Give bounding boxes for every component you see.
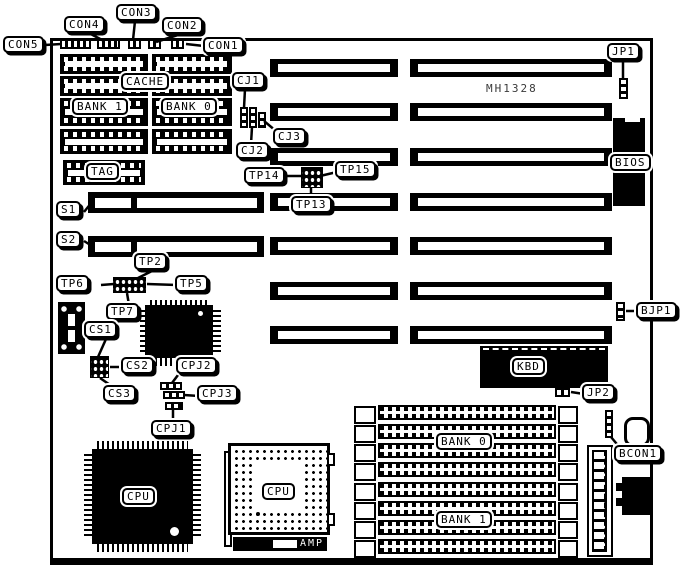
con4-header	[97, 39, 120, 49]
label-kbd: KBD	[512, 358, 545, 375]
expansion-slot-segment	[270, 103, 398, 121]
expansion-slot-segment	[270, 193, 398, 211]
callout-con5: CON5	[3, 36, 44, 53]
expansion-slot-segment	[410, 193, 612, 211]
cpu-qfp-pin1-dot	[170, 527, 179, 536]
expansion-slot-segment	[410, 237, 612, 255]
expansion-slot-segment	[270, 326, 398, 344]
callout-jp2: JP2	[582, 384, 615, 401]
label-tag: TAG	[86, 163, 119, 180]
expansion-slot-segment	[410, 103, 612, 121]
chipset-pin1-dot	[198, 311, 203, 316]
callout-tp6: TP6	[56, 275, 89, 292]
con2-header	[148, 39, 161, 49]
chipset-pins	[213, 310, 221, 353]
label-cache: CACHE	[121, 73, 169, 90]
callout-bcon1: BCON1	[614, 445, 662, 462]
cs-jumper-block	[90, 356, 109, 378]
cj3-jumper	[258, 112, 266, 128]
callout-tp5: TP5	[175, 275, 208, 292]
expansion-slot-segment	[270, 282, 398, 300]
label-cache-bank0: BANK 0	[161, 98, 217, 115]
callout-tp7: TP7	[106, 303, 139, 320]
s1-slot	[88, 192, 264, 213]
pga-pin1-dot	[256, 512, 260, 516]
callout-bjp1: BJP1	[636, 302, 677, 319]
expansion-slot-segment	[410, 326, 612, 344]
callout-con3: CON3	[116, 4, 157, 21]
jp1-jumper	[619, 78, 628, 99]
cache-chip	[152, 129, 232, 154]
expansion-slot-segment	[410, 148, 612, 166]
callout-s1: S1	[56, 201, 81, 218]
bcon1-jumper	[605, 410, 613, 438]
cpu-qfp-pins	[84, 454, 92, 539]
simm-socket	[378, 462, 556, 477]
cj1-jumper	[240, 107, 248, 128]
amp-socket-bar: AMP	[233, 537, 327, 551]
jp2-jumper	[555, 388, 570, 397]
expansion-slot-segment	[410, 59, 612, 77]
callout-con2: CON2	[162, 17, 203, 34]
label-cpu-qfp: CPU	[122, 488, 155, 505]
s2-slot	[88, 236, 264, 257]
cj2-jumper	[249, 107, 257, 128]
label-bios: BIOS	[610, 154, 651, 171]
callout-cs1: CS1	[84, 321, 117, 338]
label-cache-bank1: BANK 1	[72, 98, 128, 115]
expansion-slot-segment	[410, 282, 612, 300]
tp2-5-6-7-jumper-block	[113, 277, 146, 293]
cache-chip	[60, 54, 148, 74]
motherboard-diagram: MH1328 AMP	[0, 0, 684, 572]
callout-cpj1: CPJ1	[151, 420, 192, 437]
callout-tp14: TP14	[244, 167, 285, 184]
cpu-qfp-pins	[97, 441, 188, 449]
expansion-slot-segment	[270, 237, 398, 255]
callout-cj3: CJ3	[273, 128, 306, 145]
socket-tab	[327, 513, 335, 526]
expansion-slot-segment	[270, 59, 398, 77]
callout-s2: S2	[56, 231, 81, 248]
cache-chip	[60, 129, 148, 154]
power-connector	[58, 302, 85, 354]
callout-cs3: CS3	[103, 385, 136, 402]
cpj2-jumper	[160, 382, 182, 390]
tp13-14-15-jumper-block	[301, 167, 323, 188]
callout-con1: CON1	[203, 37, 244, 54]
cpu-qfp-pins	[97, 544, 188, 552]
amp-brand-text: AMP	[300, 538, 324, 549]
simm-socket	[378, 405, 556, 420]
con1-header	[171, 39, 184, 49]
callout-tp13: TP13	[291, 196, 332, 213]
callout-cs2: CS2	[121, 357, 154, 374]
callout-tp15: TP15	[335, 161, 376, 178]
simm-socket	[378, 539, 556, 554]
keyboard-din-connector	[624, 417, 650, 447]
label-simm-bank0: BANK 0	[436, 433, 492, 450]
bcon1-connector	[587, 445, 613, 557]
bjp1-jumper	[616, 302, 625, 321]
cache-chip	[152, 54, 232, 74]
callout-cpj2: CPJ2	[176, 357, 217, 374]
cpj3-jumper	[163, 391, 185, 399]
label-cpu-pga: CPU	[262, 483, 295, 500]
amp-window	[273, 540, 297, 548]
cpj1-jumper	[165, 402, 183, 410]
callout-cpj3: CPJ3	[197, 385, 238, 402]
callout-tp2: TP2	[134, 253, 167, 270]
callout-con4: CON4	[64, 16, 105, 33]
port-block	[622, 477, 653, 515]
con5-header	[60, 39, 91, 49]
port-tab	[616, 498, 622, 506]
socket-tab	[327, 453, 335, 466]
con3-header	[128, 39, 141, 49]
port-tab	[616, 483, 622, 491]
expansion-slot-segment	[270, 148, 398, 166]
callout-cj2: CJ2	[236, 142, 269, 159]
simm-socket	[378, 482, 556, 497]
label-simm-bank1: BANK 1	[436, 511, 492, 528]
callout-cj1: CJ1	[232, 72, 265, 89]
callout-jp1: JP1	[607, 43, 640, 60]
board-model-text: MH1328	[486, 82, 538, 95]
cpu-qfp-pins	[193, 454, 201, 539]
